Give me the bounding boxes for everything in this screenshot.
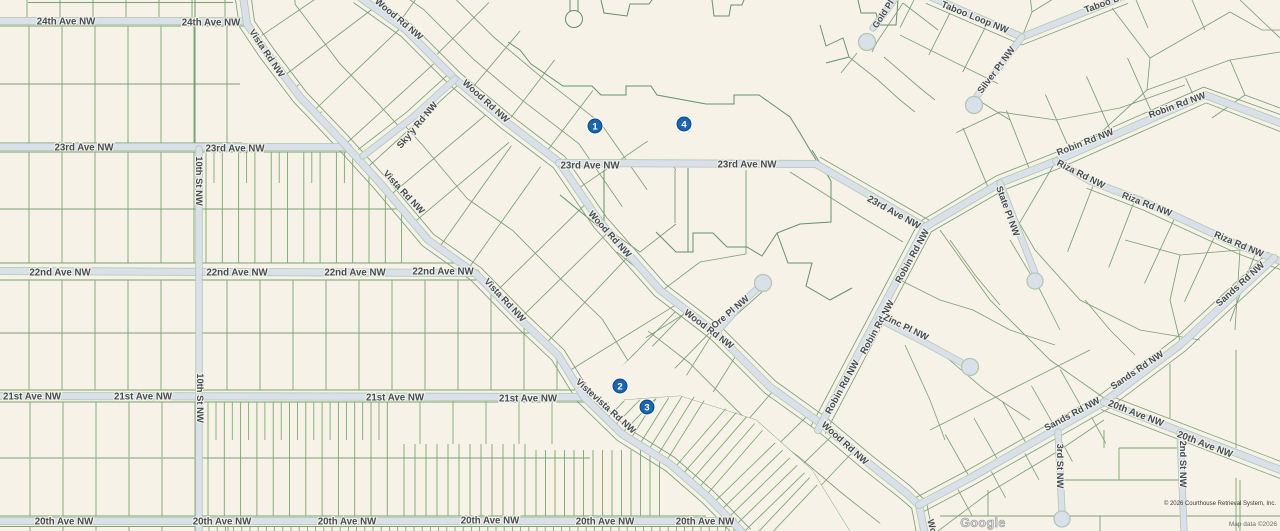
svg-text:22nd Ave NW: 22nd Ave NW: [29, 267, 91, 278]
svg-text:22nd Ave NW: 22nd Ave NW: [324, 267, 386, 278]
svg-text:21st Ave NW: 21st Ave NW: [499, 393, 558, 404]
svg-text:20th Ave NW: 20th Ave NW: [676, 516, 735, 527]
svg-text:20th Ave NW: 20th Ave NW: [461, 515, 520, 526]
svg-text:2: 2: [617, 381, 622, 392]
svg-text:23rd Ave NW: 23rd Ave NW: [560, 160, 620, 171]
svg-text:Google: Google: [960, 516, 1005, 530]
svg-text:20th Ave NW: 20th Ave NW: [576, 516, 635, 527]
svg-text:23rd Ave NW: 23rd Ave NW: [717, 159, 777, 170]
svg-text:3rd St NW: 3rd St NW: [1055, 444, 1066, 489]
svg-text:24th Ave NW: 24th Ave NW: [182, 17, 241, 28]
svg-text:10th St NW: 10th St NW: [195, 373, 206, 423]
svg-text:1: 1: [592, 121, 598, 132]
svg-text:23rd Ave NW: 23rd Ave NW: [54, 142, 114, 153]
svg-text:4: 4: [681, 119, 687, 130]
svg-text:20th Ave NW: 20th Ave NW: [35, 516, 94, 527]
svg-text:3: 3: [644, 402, 649, 413]
svg-text:20th Ave NW: 20th Ave NW: [193, 516, 252, 527]
svg-text:© 2026 Courthouse Retrieval Sy: © 2026 Courthouse Retrieval System, Inc.: [1164, 500, 1276, 507]
svg-text:24th Ave NW: 24th Ave NW: [37, 16, 96, 27]
svg-text:21st Ave NW: 21st Ave NW: [366, 392, 425, 403]
svg-text:21st Ave NW: 21st Ave NW: [114, 391, 173, 402]
svg-text:23rd Ave NW: 23rd Ave NW: [205, 143, 265, 154]
svg-text:22nd Ave NW: 22nd Ave NW: [206, 267, 268, 278]
svg-text:22nd Ave NW: 22nd Ave NW: [412, 266, 474, 277]
svg-text:2nd St NW: 2nd St NW: [1178, 441, 1189, 488]
svg-text:20th Ave NW: 20th Ave NW: [318, 516, 377, 527]
svg-text:10th St NW: 10th St NW: [194, 156, 205, 206]
svg-text:21st Ave NW: 21st Ave NW: [3, 391, 62, 402]
svg-text:Map data ©2026: Map data ©2026: [1229, 520, 1278, 528]
